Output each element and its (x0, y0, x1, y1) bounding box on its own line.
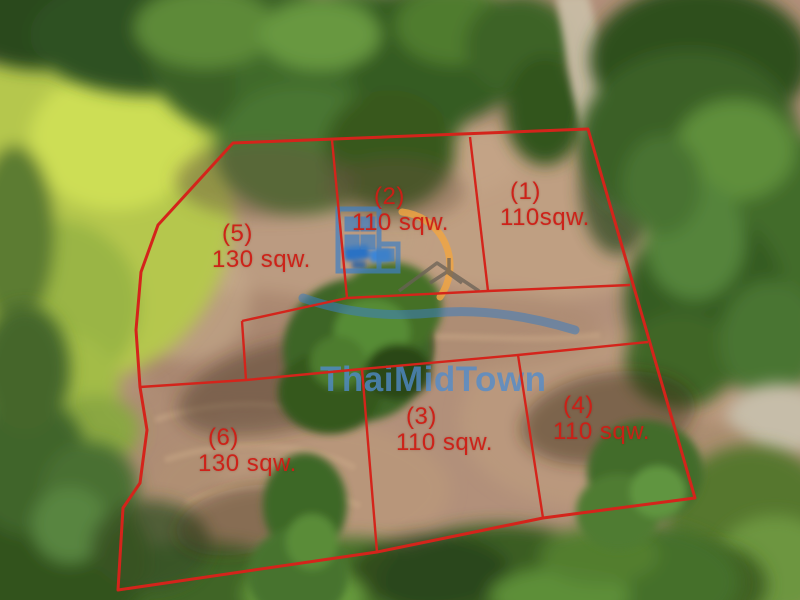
plot-5-number: (5) (222, 221, 311, 247)
plot-2-size: 110 sqw. (352, 209, 449, 236)
plot-3-number: (3) (406, 404, 493, 430)
plot-5-label: (5) 130 sqw. (212, 221, 311, 273)
plot-1-size: 110sqw. (500, 204, 590, 231)
divider-plot6-plot3 (362, 369, 377, 552)
plot-4-size: 110 sqw. (553, 418, 650, 445)
plot-1-label: (1) 110sqw. (500, 179, 590, 231)
plot-6-size: 130 sqw. (198, 450, 297, 477)
plot-4-number: (4) (563, 393, 650, 419)
divider-plot5-plot2 (332, 140, 347, 298)
plot-2-number: (2) (374, 184, 449, 210)
middle-step-line (242, 321, 246, 380)
plot-6-label: (6) 130 sqw. (198, 425, 297, 477)
upper-middle-line (242, 285, 630, 321)
plot-3-size: 110 sqw. (396, 429, 493, 456)
plot-6-number: (6) (208, 425, 297, 451)
plot-1-number: (1) (510, 179, 590, 205)
plot-lines-layer (0, 0, 800, 600)
plot-3-label: (3) 110 sqw. (396, 404, 493, 456)
aerial-photo: ThaiMidTown (1) 110sqw. (2) 110 sqw. (5)… (0, 0, 800, 600)
divider-plot2-plot1 (470, 137, 488, 291)
lower-middle-line (140, 342, 648, 387)
plot-4-label: (4) 110 sqw. (553, 393, 650, 445)
plot-5-size: 130 sqw. (212, 246, 311, 273)
divider-plot3-plot4 (518, 355, 543, 518)
plot-2-label: (2) 110 sqw. (352, 184, 449, 236)
